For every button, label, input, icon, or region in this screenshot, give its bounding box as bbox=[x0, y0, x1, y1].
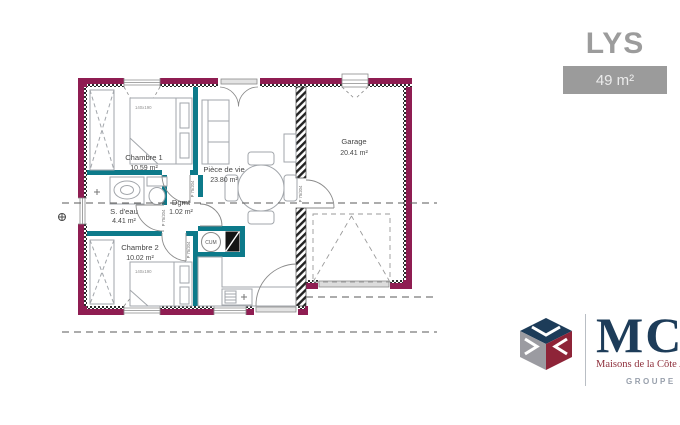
room-area-sdeau: 4.41 m² bbox=[112, 218, 136, 225]
room-area-chambre2: 10.02 m² bbox=[126, 255, 154, 262]
water-heater-label: CUM bbox=[205, 240, 216, 246]
furniture-bathroom bbox=[94, 177, 167, 205]
door-size-label-3: P 75/204 bbox=[186, 241, 191, 258]
brand-subtitle: Maisons de la Côte Atlantique bbox=[596, 359, 680, 370]
room-area-chambre1: 10.59 m² bbox=[130, 165, 158, 172]
brand-name: MCA bbox=[596, 314, 680, 356]
room-area-degagement: 1.02 m² bbox=[169, 209, 193, 216]
brand-group: GROUPE HEXAOM bbox=[626, 377, 680, 386]
door-size-label-2: P 75/204 bbox=[161, 209, 166, 226]
brand-logo: MCA Maisons de la Côte Atlantique GROUPE… bbox=[516, 314, 680, 386]
door-size-label-4: P 75/204 bbox=[298, 185, 303, 202]
area-badge: 49 m² bbox=[563, 66, 667, 94]
room-area-piece-de-vie: 23.80 m² bbox=[210, 177, 238, 184]
model-title: LYS bbox=[563, 27, 667, 61]
furniture-living bbox=[202, 100, 297, 224]
section-marker bbox=[58, 213, 66, 221]
room-label-piece-de-vie: Pièce de vie bbox=[203, 165, 244, 174]
mca-cube-icon bbox=[516, 318, 576, 372]
room-area-garage: 20.41 m² bbox=[340, 150, 368, 157]
room-label-chambre1: Chambre 1 bbox=[125, 153, 163, 162]
garage-door bbox=[313, 214, 390, 282]
room-label-sdeau: S. d'eau bbox=[110, 207, 138, 216]
room-label-garage: Garage bbox=[341, 137, 366, 146]
door-size-label-1: P 75/204 bbox=[190, 180, 195, 197]
room-label-chambre2: Chambre 2 bbox=[121, 243, 159, 252]
brand-text-block: MCA Maisons de la Côte Atlantique GROUPE… bbox=[585, 314, 680, 386]
page: Chambre 1 10.59 m² S. d'eau 4.41 m² Cham… bbox=[0, 0, 680, 425]
bed1-size-label: 140x190 bbox=[135, 105, 152, 110]
room-label-degagement: Dgmt bbox=[172, 198, 191, 207]
bed2-size-label: 140x190 bbox=[135, 269, 152, 274]
